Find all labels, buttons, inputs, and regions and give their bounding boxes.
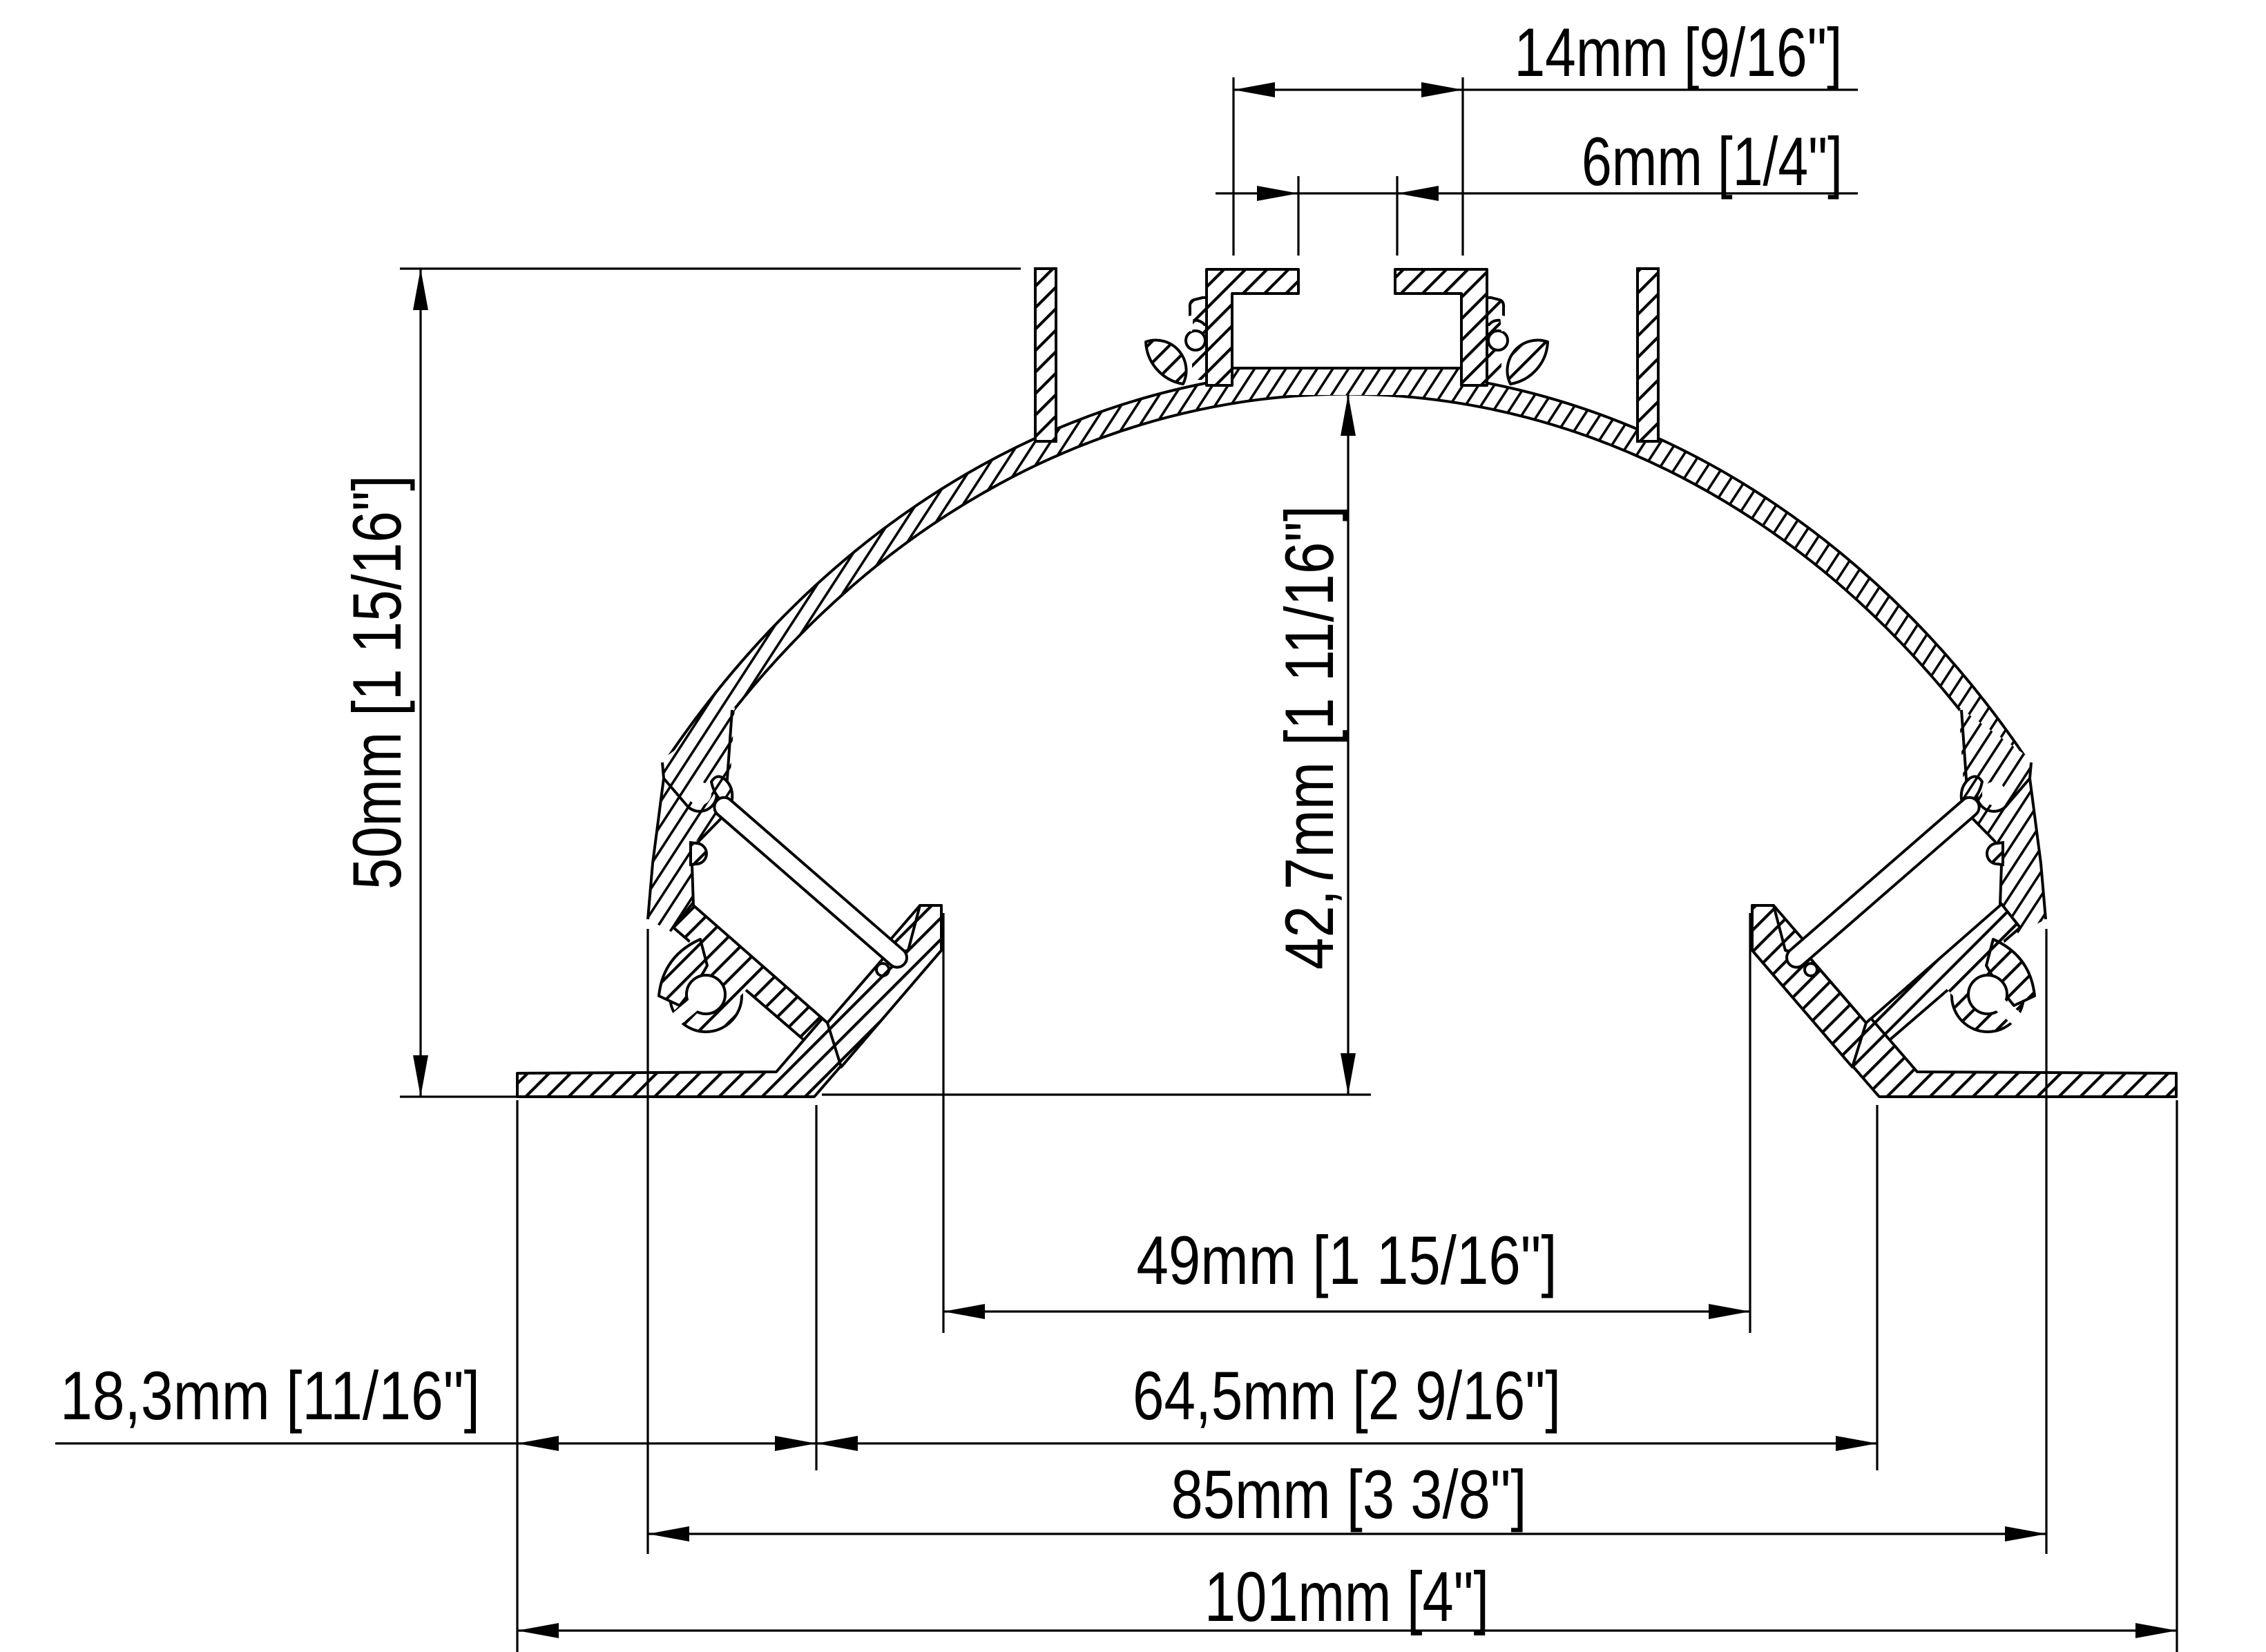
svg-text:42,7mm [1 11/16"]: 42,7mm [1 11/16"] <box>1271 506 1347 970</box>
svg-text:85mm [3 3/8"]: 85mm [3 3/8"] <box>1171 1456 1527 1533</box>
svg-text:50mm [1 15/16"]: 50mm [1 15/16"] <box>338 475 415 890</box>
svg-text:101mm [4"]: 101mm [4"] <box>1204 1557 1489 1636</box>
svg-text:18,3mm [11/16"]: 18,3mm [11/16"] <box>60 1357 480 1434</box>
svg-text:14mm [9/16"]: 14mm [9/16"] <box>1515 14 1843 90</box>
svg-text:6mm [1/4"]: 6mm [1/4"] <box>1582 123 1843 200</box>
svg-text:64,5mm [2 9/16"]: 64,5mm [2 9/16"] <box>1133 1357 1561 1434</box>
svg-text:49mm [1 15/16"]: 49mm [1 15/16"] <box>1137 1222 1557 1298</box>
